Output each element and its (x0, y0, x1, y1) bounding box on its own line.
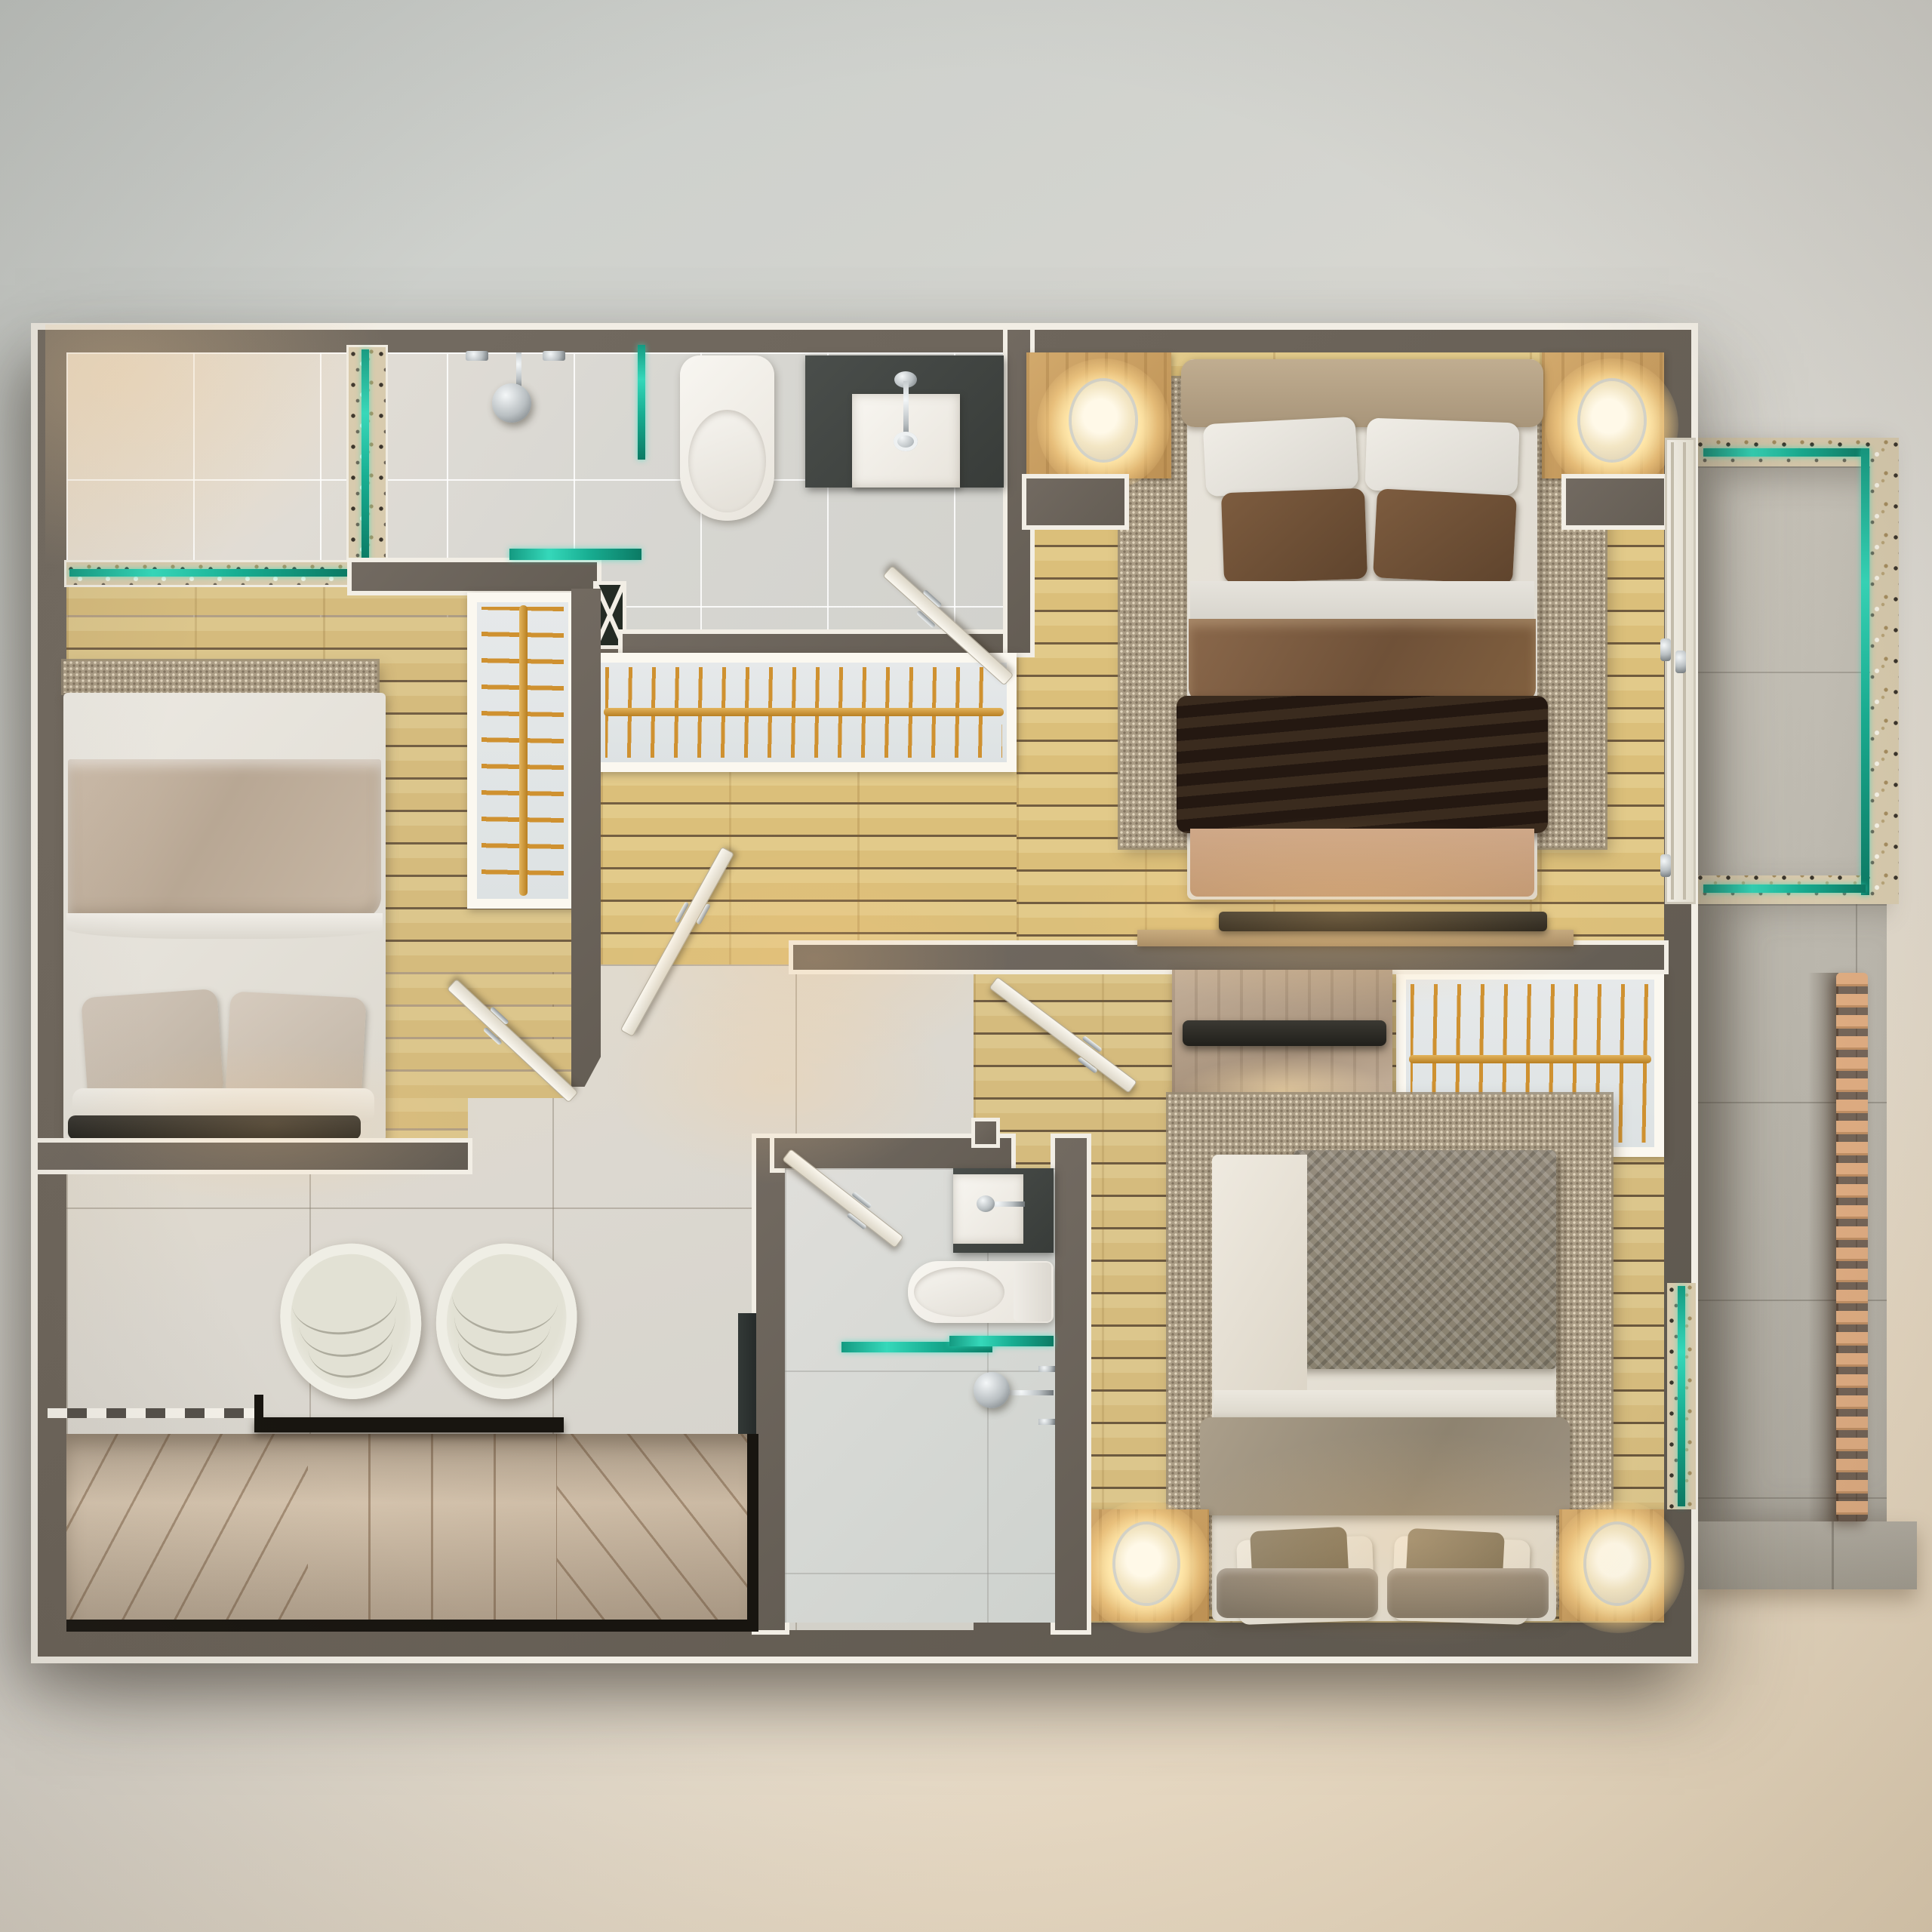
bed1-terrazzo-band (66, 562, 352, 585)
master-pillow-brown-left (1221, 488, 1367, 584)
bedroom2-duvet-edge (1212, 1155, 1307, 1404)
bathroom2-glass-shelf-short (949, 1336, 1054, 1346)
bathroom2-wall-niche (975, 1121, 996, 1144)
master-tv-console (1137, 930, 1574, 946)
wardrobe-rack-1 (467, 592, 578, 909)
wall-bedroom1-hall (571, 589, 601, 1087)
bedroom2-lamp-right (1586, 1524, 1648, 1603)
master-lamp-right (1580, 381, 1644, 460)
master-duvet-brown (1189, 619, 1536, 702)
stair-rail-stub (254, 1395, 263, 1417)
bathroom2-wall-left (756, 1138, 785, 1630)
balcony-floor (1696, 466, 1870, 875)
toilet2 (908, 1261, 1054, 1323)
bedroom1-bed-frame-bar (68, 1115, 361, 1140)
stair-treads-center (308, 1434, 557, 1630)
sliding-door-handle-2 (1675, 651, 1686, 673)
bathroom2-valve-2 (1038, 1419, 1055, 1425)
master-foot-blanket (1190, 829, 1534, 897)
stair-rail-bottom (66, 1620, 758, 1632)
stair-dashed-mark (48, 1408, 254, 1418)
stair-winders-right (557, 1434, 758, 1630)
toilet2-seat (914, 1267, 1004, 1317)
bedroom2-sheet-band (1214, 1390, 1555, 1420)
bedroom1-sheet-fold (66, 913, 383, 939)
shower-glass-shelf (509, 549, 641, 560)
bed1-glass-line (69, 569, 347, 577)
bedroom2-bed (1212, 1155, 1556, 1621)
wardrobe-rack-3-rail (1409, 1055, 1651, 1063)
floor-plan-render: { "scene": { "title": "Top-down 3D rende… (0, 0, 1932, 1932)
vanity1-drain-ring (894, 432, 918, 451)
master-sheet-band (1190, 581, 1534, 623)
shower-terrazzo-strip (349, 347, 386, 572)
bedroom2-soft-blanket (1200, 1417, 1570, 1515)
master-nook-wall-left (1026, 478, 1124, 525)
stair-rail-inner (254, 1417, 564, 1432)
balcony-glass-right (1861, 448, 1869, 895)
master-headboard (1181, 359, 1543, 427)
bedroom1-blanket (68, 759, 381, 919)
master-bed (1187, 359, 1537, 900)
bedroom2-lamp-left (1115, 1524, 1177, 1603)
hall-floor (601, 772, 1017, 964)
balcony-glass-bottom (1703, 884, 1866, 893)
stairwell (66, 1434, 758, 1630)
shaft-x-box (597, 585, 623, 645)
wardrobe-rack-1-bed (477, 602, 568, 899)
bedroom2-window-sill (1667, 1283, 1696, 1509)
toilet-glass-partition (638, 345, 645, 460)
bedroom1-pillow-left (81, 989, 223, 1105)
wall-bedroom1-bottom (38, 1143, 468, 1170)
vanity2-faucet-rose (977, 1195, 995, 1212)
louver-slat-stack (1836, 973, 1868, 1521)
toilet1-seat (688, 410, 766, 512)
balcony-sliding-door (1665, 438, 1696, 904)
bedroom2-knit-throw (1294, 1150, 1556, 1369)
bathroom2-shower-arm (1004, 1390, 1054, 1395)
wardrobe-rack-1-rail (519, 605, 528, 896)
master-throw-dark (1177, 696, 1548, 833)
master-nook-wall-right (1566, 478, 1664, 525)
master-lamp-left (1072, 381, 1135, 460)
wardrobe-rack-2-bed (601, 663, 1007, 762)
terrace-ledge (1696, 1521, 1917, 1589)
bedroom2-window-glass (1678, 1286, 1685, 1506)
balcony (1696, 438, 1899, 904)
balcony-glass-top (1703, 448, 1866, 457)
wall-shower-bottom (352, 562, 597, 591)
bedroom2-headboard-cushion-right (1387, 1568, 1549, 1618)
bedroom2-tv (1183, 1020, 1386, 1046)
bedroom1-bed (63, 693, 386, 1141)
toilet1 (680, 355, 774, 521)
master-tv (1219, 912, 1547, 931)
shower-valve-left (466, 351, 488, 361)
master-pillow-white-left (1203, 417, 1359, 497)
bedroom1-rug-runner (63, 661, 377, 693)
stair-rail-right (747, 1434, 758, 1630)
toilet2-tank (1014, 1263, 1051, 1321)
shower-head (492, 383, 531, 423)
wall-center (793, 945, 1664, 970)
stair-winders-left (66, 1434, 308, 1630)
master-pillow-white-right (1364, 418, 1519, 496)
sliding-door-handle-3 (1660, 854, 1671, 877)
shower-valve-right (543, 351, 565, 361)
master-pillow-brown-right (1373, 488, 1517, 585)
bedroom2-headboard-cushion-left (1217, 1568, 1378, 1618)
wardrobe-rack-2-rail (604, 708, 1004, 716)
sliding-door-handle-1 (1660, 638, 1671, 661)
shower-glass-line (361, 349, 369, 562)
sliding-door-rail-1 (1671, 442, 1674, 900)
bathroom2-wall-right (1055, 1138, 1087, 1630)
bathroom2-shower-head (974, 1372, 1010, 1408)
bathroom2-valve-1 (1038, 1366, 1055, 1372)
wardrobe-rack-2 (591, 653, 1017, 772)
